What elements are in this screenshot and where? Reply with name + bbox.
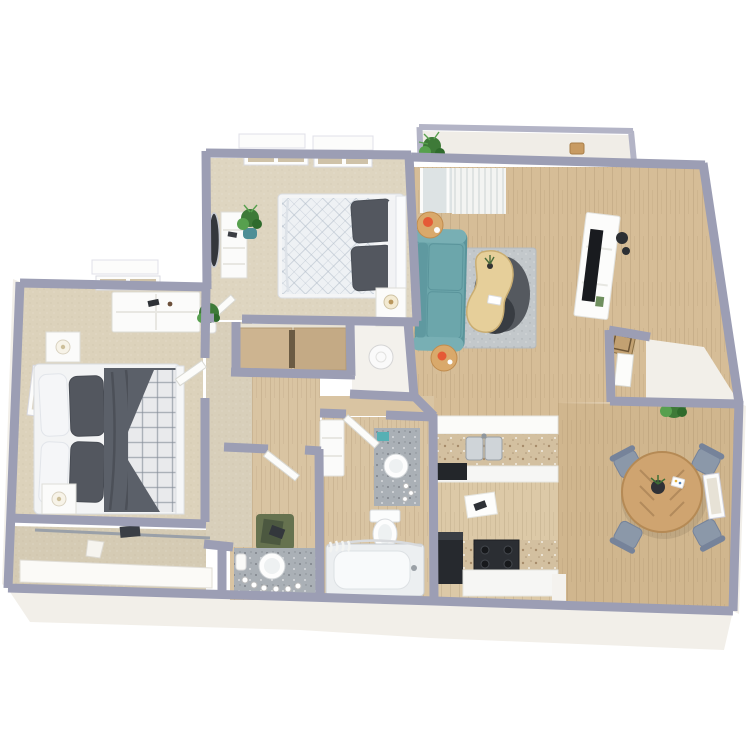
teal-pot xyxy=(243,228,257,239)
dishwasher xyxy=(437,463,467,480)
door-seam xyxy=(289,330,295,368)
window-header xyxy=(92,260,158,274)
pillow-dark xyxy=(351,245,393,291)
footboard xyxy=(176,366,184,514)
cabinet-faces xyxy=(463,570,558,596)
perfume-bottle xyxy=(295,583,301,589)
headboard xyxy=(396,196,406,296)
kitchen-floor-mat xyxy=(465,492,498,518)
balcony-stool xyxy=(570,143,584,154)
bathroom-vanity xyxy=(374,428,420,506)
wall-speaker-icon xyxy=(622,247,630,255)
sliding-door-right xyxy=(294,328,346,370)
master-dresser xyxy=(112,292,200,332)
pillow-dark xyxy=(351,199,394,244)
sofa-cushion xyxy=(428,244,463,291)
kitchen-counter-north xyxy=(435,433,558,482)
master-nightstand xyxy=(46,332,80,362)
water-heater xyxy=(369,345,393,369)
side-table-south xyxy=(431,345,457,371)
sink-basin xyxy=(466,437,483,460)
perfume-bottle xyxy=(261,585,267,591)
table-card xyxy=(487,295,501,305)
bedroom2-bed xyxy=(278,194,406,298)
wall-stub xyxy=(552,574,566,602)
vanity-area-sink xyxy=(234,548,316,594)
pillow-dark xyxy=(69,375,105,436)
hanging-clothes xyxy=(120,525,141,538)
sliding-door-left xyxy=(240,328,292,370)
room-utility-closet xyxy=(352,326,410,394)
side-table-north xyxy=(417,212,443,238)
wall-speaker-icon xyxy=(616,232,628,244)
sink-basin xyxy=(485,437,502,460)
range-stove xyxy=(474,540,519,574)
window-header xyxy=(313,136,373,150)
plaid-blanket xyxy=(128,370,180,512)
window-header xyxy=(239,134,305,148)
floor-plan-render xyxy=(0,0,750,750)
perfume-bottle xyxy=(251,582,257,588)
master-nightstand xyxy=(42,484,76,514)
orange-mug xyxy=(438,352,447,361)
toiletry-bottle xyxy=(403,483,408,488)
tissue-box xyxy=(377,432,389,441)
vertical-blinds-icon xyxy=(452,168,506,214)
faucet xyxy=(481,433,486,438)
floorplan-page xyxy=(0,0,750,750)
hand-towel xyxy=(236,554,246,570)
tub-faucet xyxy=(411,565,417,571)
perfume-bottle xyxy=(273,586,279,592)
dresser-trinket xyxy=(168,302,173,307)
perfume-bottle xyxy=(285,586,291,592)
bathtub xyxy=(326,541,424,597)
white-cup xyxy=(434,227,440,233)
orange-teapot xyxy=(423,217,433,227)
entry-door-leaf xyxy=(614,353,633,386)
perfume-bottle xyxy=(242,577,248,583)
console-decor xyxy=(595,296,604,307)
spine-wall xyxy=(205,151,207,522)
pillow-white xyxy=(38,373,69,436)
round-dining-table xyxy=(622,452,702,532)
room-bedroom-2-closet xyxy=(236,324,352,374)
kitchen-half-wall xyxy=(435,416,558,434)
toiletry-bottle xyxy=(403,497,408,502)
green-bath-rug xyxy=(256,514,294,550)
white-dish xyxy=(448,360,453,365)
sofa-cushion xyxy=(427,292,462,339)
toiletry-bottle xyxy=(409,491,414,496)
